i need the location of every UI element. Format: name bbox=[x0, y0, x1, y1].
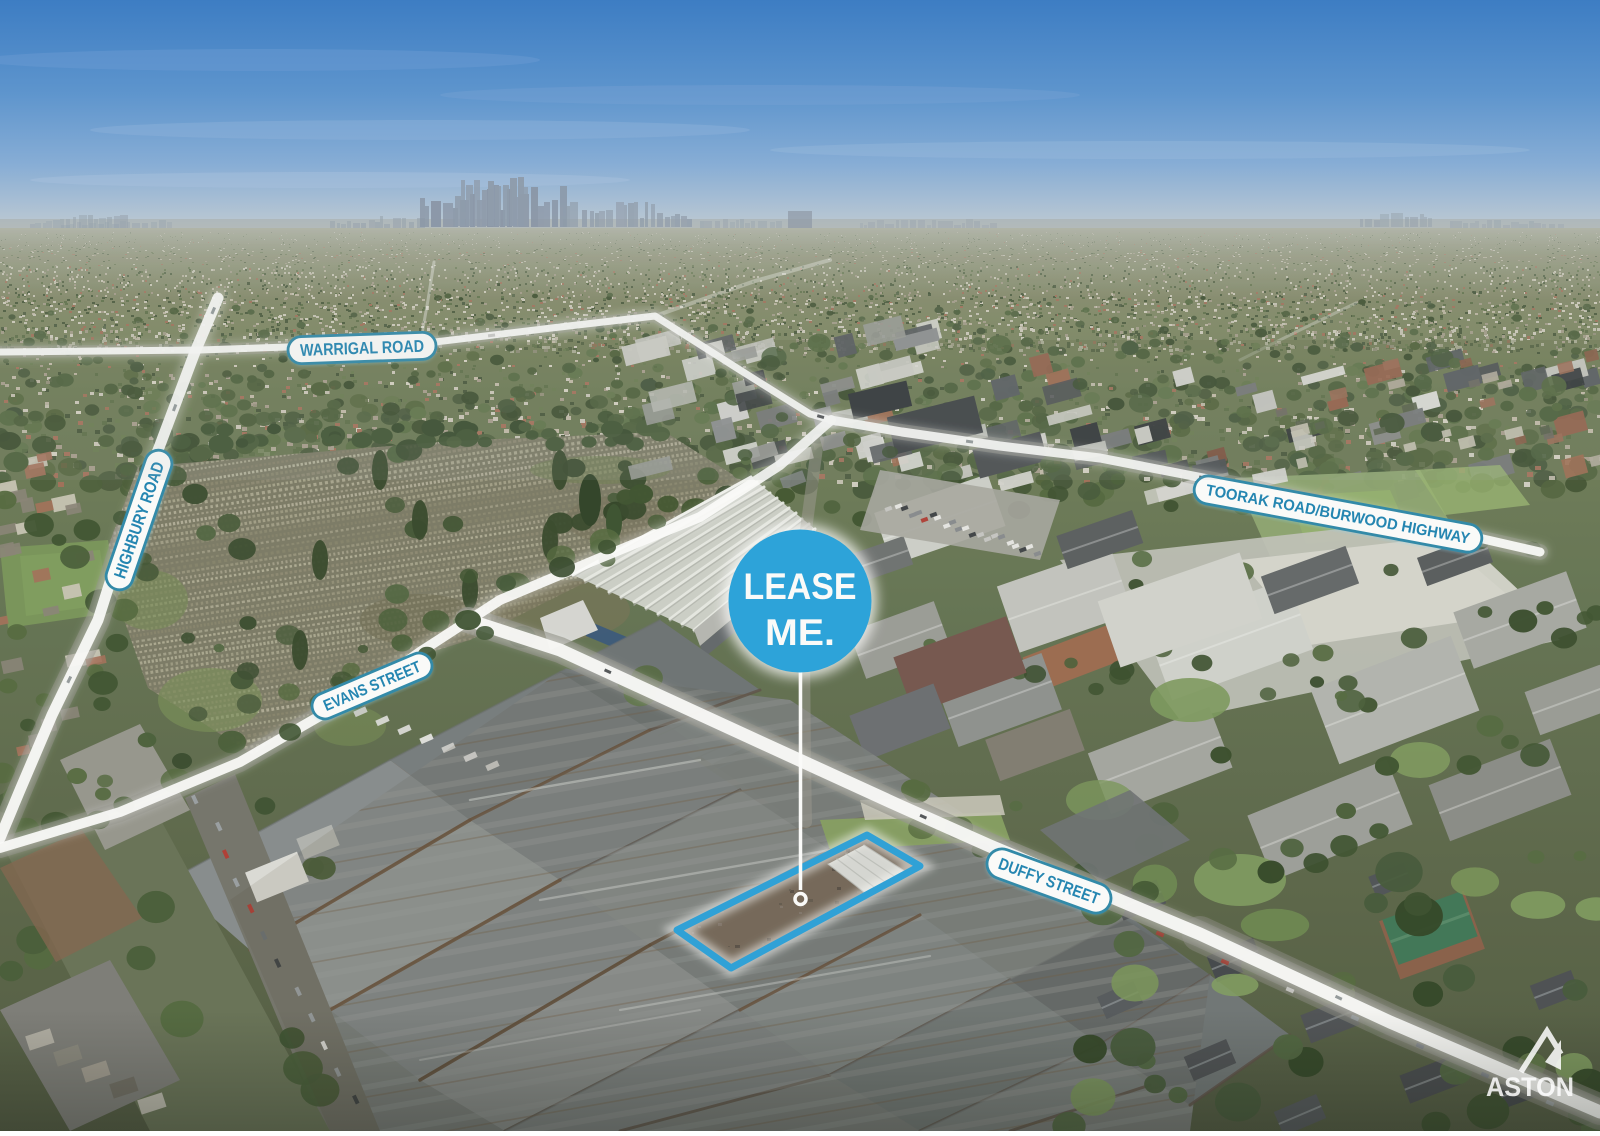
svg-text:ASTON: ASTON bbox=[1486, 1072, 1574, 1102]
